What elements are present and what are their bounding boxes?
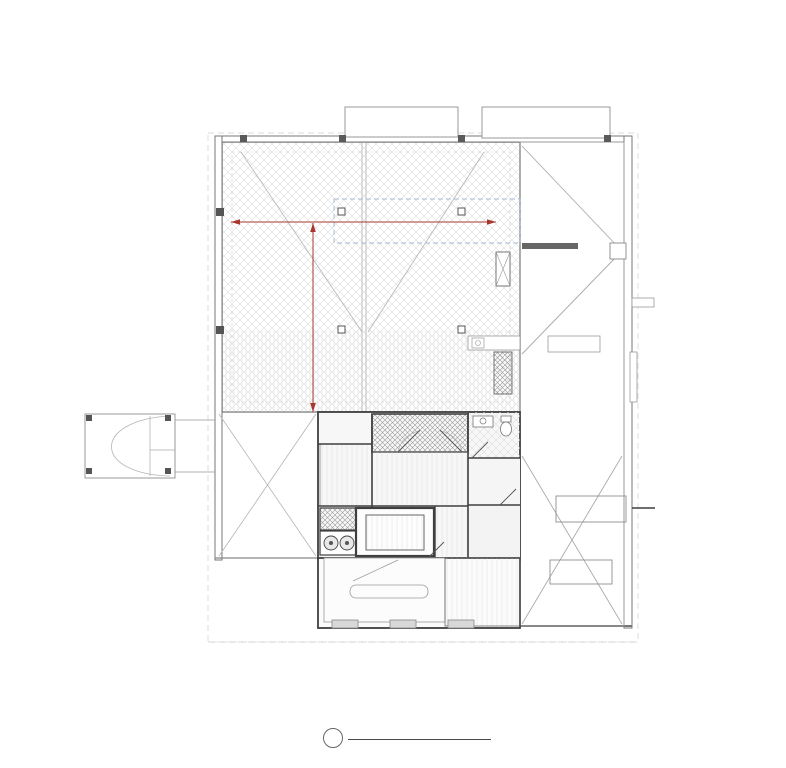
annotation-overlay [0,0,786,768]
detail-reference-bubble [323,728,343,748]
title-underline [348,739,491,740]
floor-plan-sheet: const data = JSON.parse(document.getElem… [0,0,786,768]
